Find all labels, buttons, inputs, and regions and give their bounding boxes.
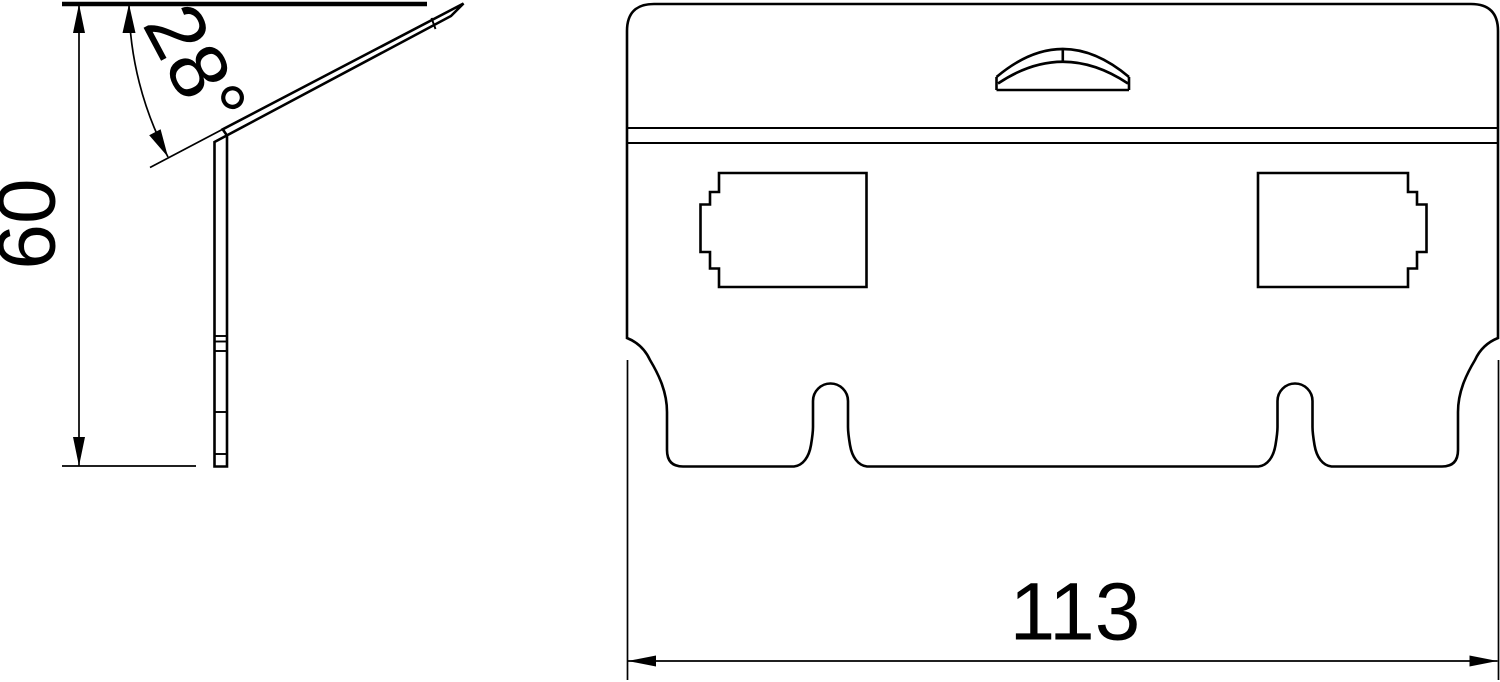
- width-dimension-text: 113: [1010, 567, 1141, 658]
- side-view: 60 28°: [0, 0, 464, 466]
- front-view-plate-outline: [627, 4, 1498, 467]
- angle-dimension: 28°: [123, 0, 265, 168]
- dimension-arrow-left: [628, 656, 656, 667]
- front-view: 113: [627, 4, 1499, 680]
- dimension-arrow-down: [73, 437, 85, 466]
- angle-arrow-bottom: [149, 129, 168, 157]
- technical-drawing-canvas: 60 28°: [0, 0, 1500, 682]
- side-view-bracket-outline: [215, 4, 464, 467]
- height-dimension-text: 60: [0, 178, 73, 269]
- drawing-svg: 60 28°: [0, 0, 1500, 682]
- dimension-arrow-right: [1470, 656, 1498, 667]
- dimension-arrow-up: [73, 4, 85, 33]
